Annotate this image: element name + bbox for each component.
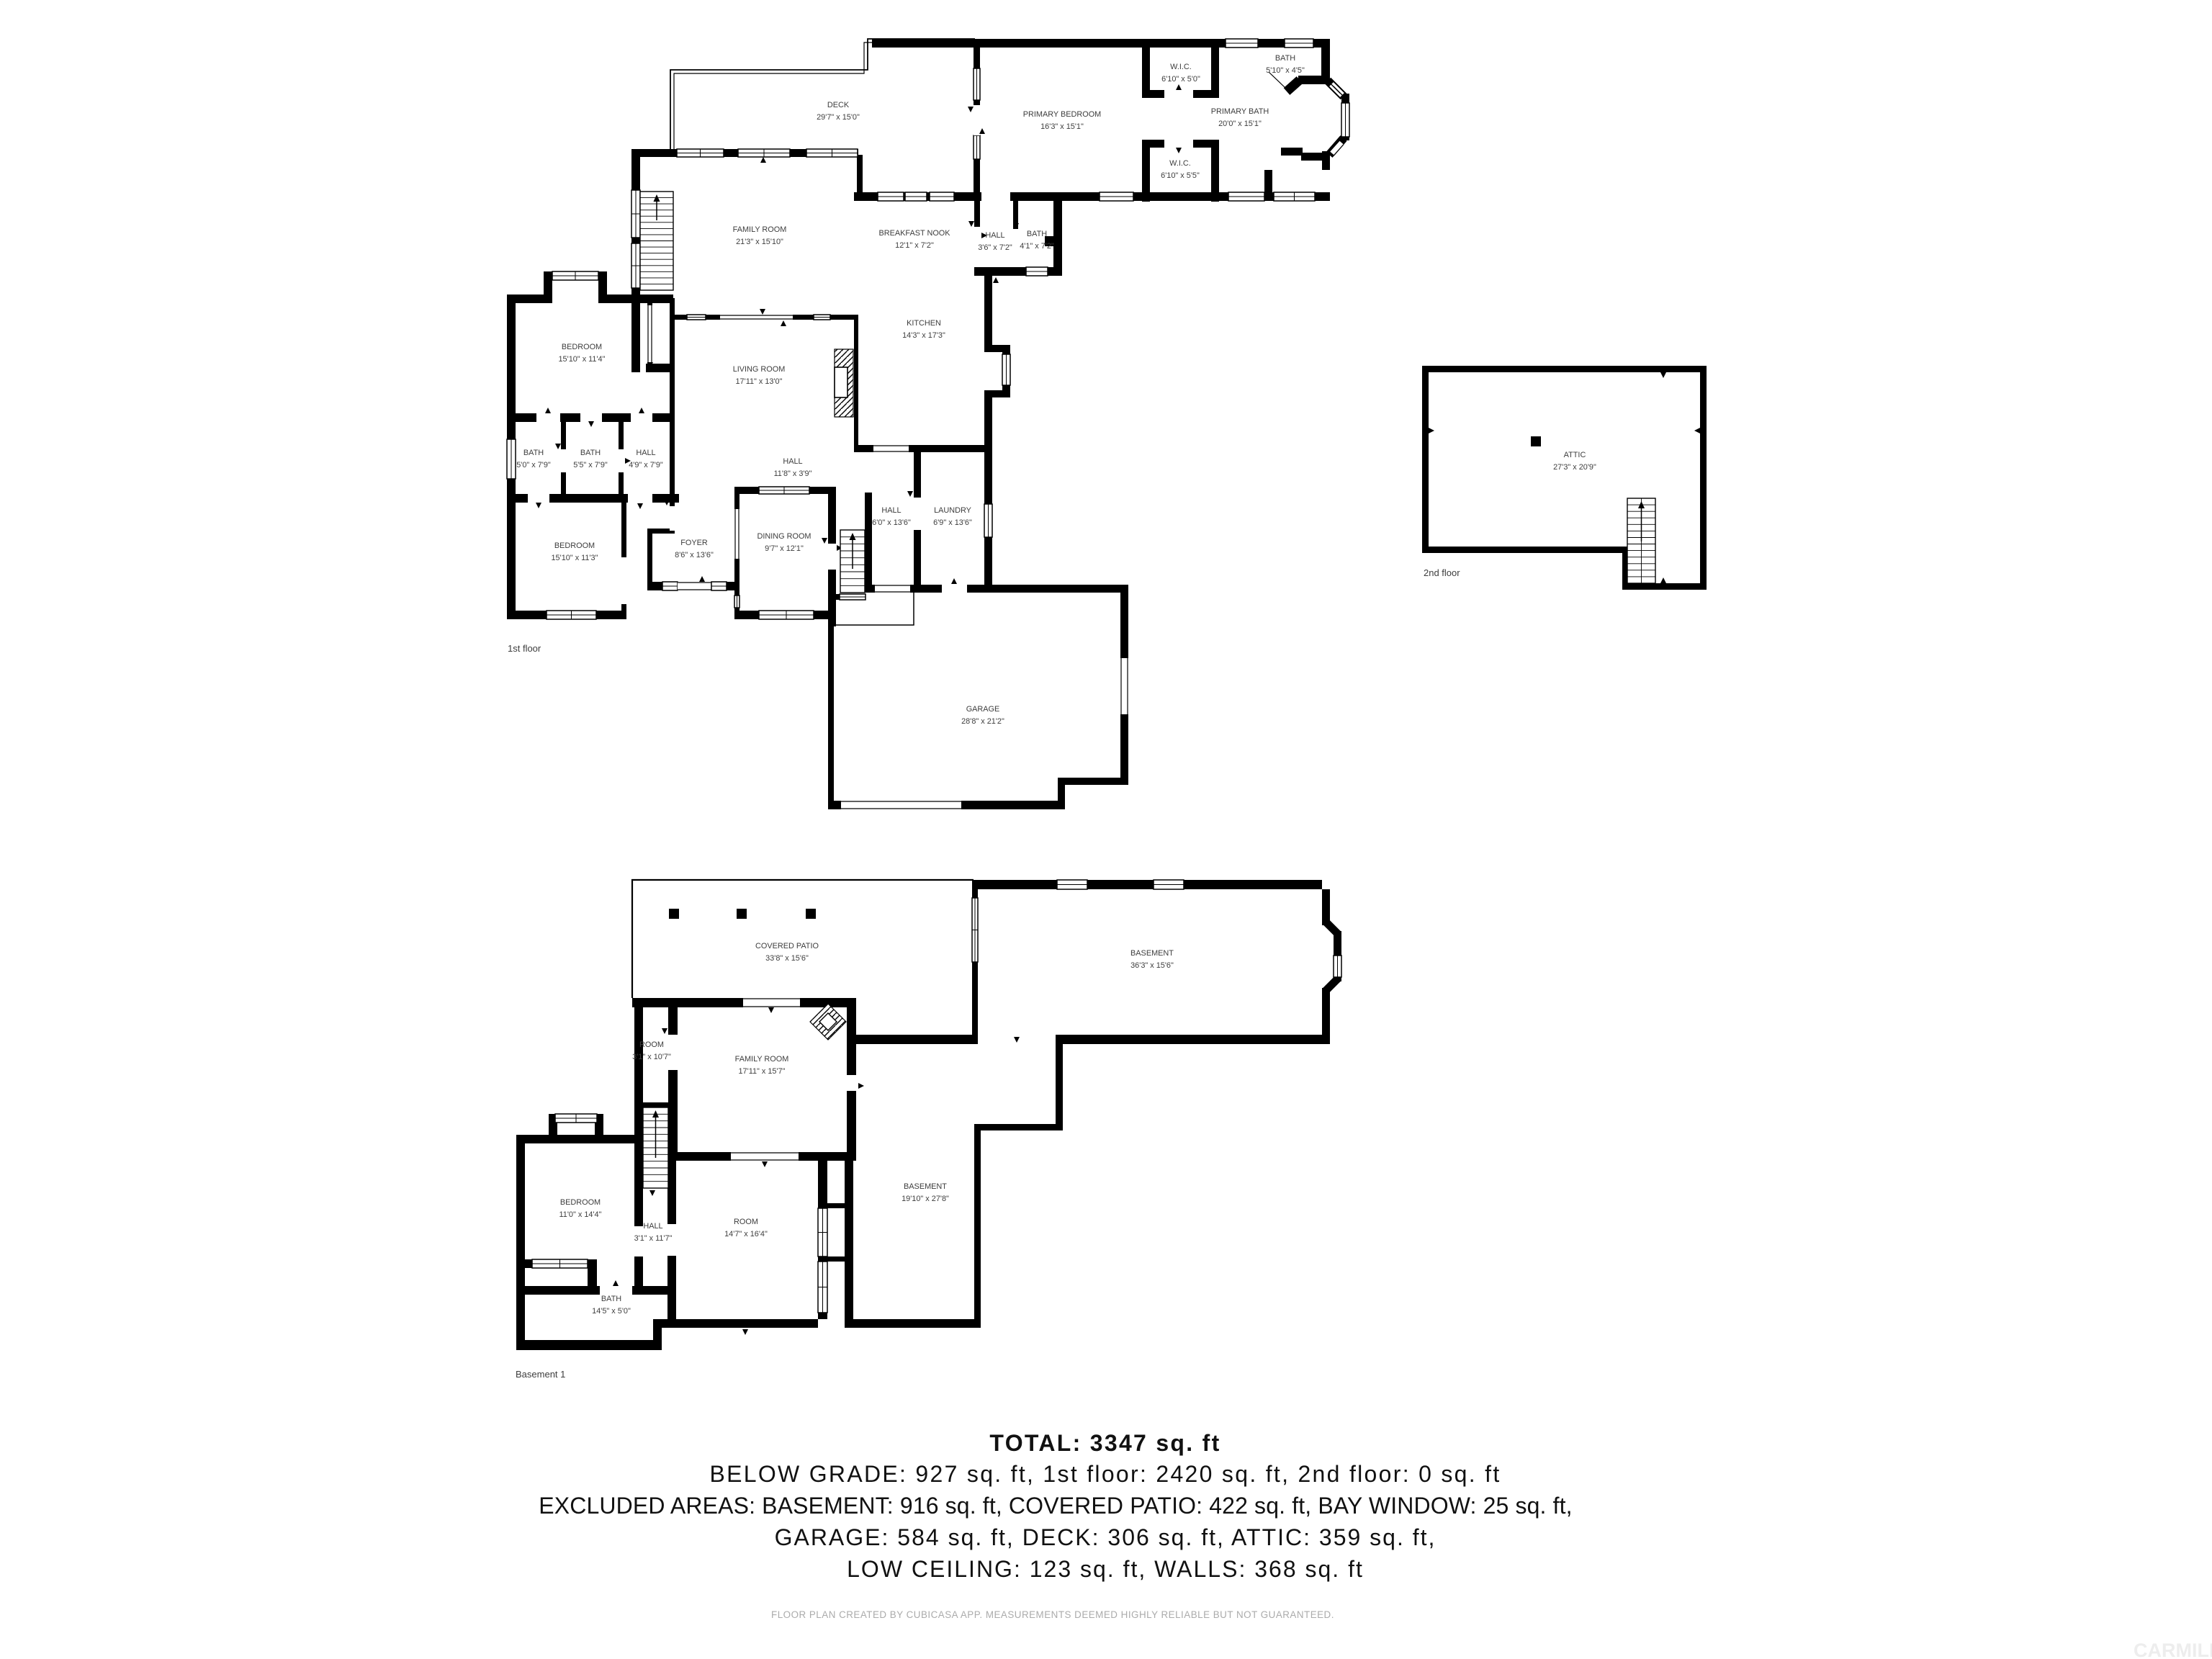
svg-text:CARMILE, INC: CARMILE, INC [2134,1640,2212,1659]
svg-text:21'3" x 15'10": 21'3" x 15'10" [736,238,783,246]
svg-text:8'6" x 13'6": 8'6" x 13'6" [675,551,714,559]
svg-text:HALL: HALL [881,506,901,515]
svg-text:PRIMARY BEDROOM: PRIMARY BEDROOM [1023,110,1102,119]
svg-text:COVERED PATIO: COVERED PATIO [755,942,819,950]
svg-text:27'3" x 20'9": 27'3" x 20'9" [1553,463,1596,472]
svg-text:BATH: BATH [1027,230,1047,238]
svg-text:FAMILY ROOM: FAMILY ROOM [733,225,787,234]
svg-text:LAUNDRY: LAUNDRY [934,506,972,515]
svg-text:3'1" x 11'7": 3'1" x 11'7" [634,1234,673,1243]
svg-text:3'6" x 7'2": 3'6" x 7'2" [978,243,1012,252]
svg-text:4'9" x 7'9": 4'9" x 7'9" [629,461,663,469]
svg-text:11'8" x 3'9": 11'8" x 3'9" [774,469,812,478]
svg-text:16'3" x 15'1": 16'3" x 15'1" [1040,122,1084,131]
svg-text:ATTIC: ATTIC [1564,451,1586,459]
svg-text:BELOW GRADE: 927 sq. ft, 1st f: BELOW GRADE: 927 sq. ft, 1st floor: 2420… [709,1461,1501,1487]
svg-text:15'10" x 11'3": 15'10" x 11'3" [552,554,598,562]
svg-text:36'3" x 15'6": 36'3" x 15'6" [1130,961,1174,970]
svg-text:5'10" x 4'5": 5'10" x 4'5" [1266,66,1305,75]
svg-text:17'11" x 13'0": 17'11" x 13'0" [736,377,783,386]
svg-text:14'7" x 16'4": 14'7" x 16'4" [724,1230,768,1238]
svg-text:33'8" x 15'6": 33'8" x 15'6" [765,954,809,963]
svg-text:GARAGE: 584 sq. ft, DECK: 306: GARAGE: 584 sq. ft, DECK: 306 sq. ft, AT… [775,1524,1437,1550]
svg-text:17'11" x 15'7": 17'11" x 15'7" [739,1067,786,1076]
svg-text:DECK: DECK [827,101,850,109]
svg-text:28'8" x 21'2": 28'8" x 21'2" [961,717,1004,726]
svg-text:15'10" x 11'4": 15'10" x 11'4" [559,355,606,364]
svg-text:KITCHEN: KITCHEN [907,319,941,328]
svg-text:4'1" x 7'2": 4'1" x 7'2" [1020,242,1054,251]
svg-text:FOYER: FOYER [680,539,708,547]
svg-text:BATH: BATH [601,1295,621,1303]
svg-text:11'0" x 14'4": 11'0" x 14'4" [559,1210,602,1219]
svg-text:GARAGE: GARAGE [966,705,1000,714]
svg-text:BATH: BATH [1275,54,1295,63]
svg-text:12'1" x 7'2": 12'1" x 7'2" [895,241,934,250]
svg-text:6'10" x 5'5": 6'10" x 5'5" [1161,171,1200,180]
svg-text:LIVING ROOM: LIVING ROOM [733,365,786,374]
svg-text:BASEMENT: BASEMENT [904,1182,947,1191]
svg-text:Basement 1: Basement 1 [516,1369,565,1380]
svg-text:BATH: BATH [580,449,601,457]
svg-text:HALL: HALL [643,1222,662,1231]
svg-text:BREAKFAST NOOK: BREAKFAST NOOK [878,229,950,238]
svg-text:14'5" x 5'0": 14'5" x 5'0" [592,1307,631,1316]
svg-text:BATH: BATH [523,449,544,457]
svg-text:29'7" x 15'0": 29'7" x 15'0" [817,113,860,122]
svg-text:BEDROOM: BEDROOM [554,541,595,550]
svg-text:BASEMENT: BASEMENT [1130,949,1174,958]
svg-text:DINING ROOM: DINING ROOM [757,532,811,541]
svg-text:HALL: HALL [783,457,802,466]
svg-text:W.I.C.: W.I.C. [1169,159,1191,168]
svg-text:BEDROOM: BEDROOM [562,343,602,351]
svg-text:14'3" x 17'3": 14'3" x 17'3" [902,331,945,340]
svg-text:6'9" x 13'6": 6'9" x 13'6" [933,518,972,527]
svg-text:9'7" x 12'1": 9'7" x 12'1" [765,544,804,553]
svg-text:LOW CEILING: 123 sq. ft, WALLS: LOW CEILING: 123 sq. ft, WALLS: 368 sq. … [847,1556,1364,1582]
svg-text:20'0" x 15'1": 20'0" x 15'1" [1218,120,1262,128]
svg-text:6'10" x 5'0": 6'10" x 5'0" [1161,75,1200,84]
svg-text:ROOM: ROOM [639,1040,664,1049]
svg-text:FLOOR PLAN CREATED BY CUBICASA: FLOOR PLAN CREATED BY CUBICASA APP. MEAS… [771,1609,1334,1620]
svg-text:PRIMARY BATH: PRIMARY BATH [1211,107,1269,116]
svg-text:ROOM: ROOM [734,1218,758,1226]
svg-text:EXCLUDED AREAS: BASEMENT: 916: EXCLUDED AREAS: BASEMENT: 916 sq. ft, CO… [539,1493,1572,1519]
svg-text:FAMILY ROOM: FAMILY ROOM [735,1055,789,1064]
svg-text:HALL: HALL [985,231,1004,240]
svg-text:TOTAL: 3347 sq. ft: TOTAL: 3347 sq. ft [989,1430,1220,1456]
svg-text:1st floor: 1st floor [508,643,541,654]
svg-text:W.I.C.: W.I.C. [1170,63,1192,71]
svg-text:2nd floor: 2nd floor [1424,567,1460,578]
svg-text:19'10" x 27'8": 19'10" x 27'8" [902,1195,949,1203]
svg-text:6'0" x 13'6": 6'0" x 13'6" [872,518,911,527]
svg-text:3'1" x 10'7": 3'1" x 10'7" [632,1053,671,1061]
svg-text:HALL: HALL [636,449,655,457]
svg-text:BEDROOM: BEDROOM [560,1198,601,1207]
svg-text:5'0" x 7'9": 5'0" x 7'9" [516,461,551,469]
svg-text:5'5" x 7'9": 5'5" x 7'9" [573,461,608,469]
